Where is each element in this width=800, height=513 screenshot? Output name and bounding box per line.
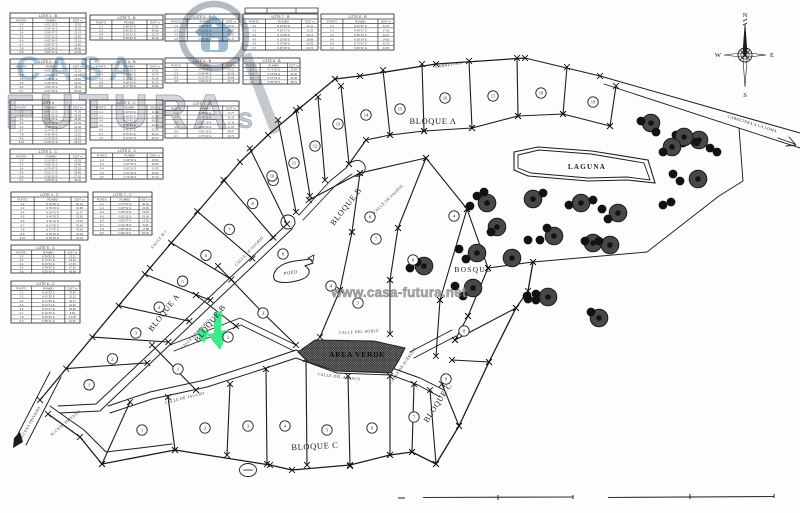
svg-text:15.72: 15.72 [152, 32, 159, 36]
svg-text:PUNTO: PUNTO [17, 197, 28, 201]
svg-text:N 71°50' E: N 71°50' E [42, 299, 55, 303]
svg-text:5-6: 5-6 [330, 42, 334, 46]
svg-text:N 30°17' E: N 30°17' E [42, 307, 55, 311]
svg-text:42.13: 42.13 [152, 80, 159, 84]
svg-text:N 23°45' E: N 23°45' E [277, 24, 290, 28]
svg-text:LOTE 4 - C: LOTE 4 - C [40, 193, 59, 197]
svg-text:1-2: 1-2 [330, 24, 334, 28]
svg-text:3-4: 3-4 [174, 75, 178, 79]
svg-text:N 73°47' E: N 73°47' E [45, 166, 58, 170]
svg-text:17.92: 17.92 [383, 28, 390, 32]
svg-text:3-4: 3-4 [100, 210, 104, 214]
svg-text:N 29°15' E: N 29°15' E [46, 236, 59, 240]
svg-text:6-7: 6-7 [330, 46, 334, 50]
svg-text:RUMBO: RUMBO [43, 286, 55, 290]
svg-text:N 84°43' E: N 84°43' E [199, 79, 212, 83]
svg-text:6-7: 6-7 [252, 46, 256, 50]
svg-text:11.41: 11.41 [307, 24, 314, 28]
svg-text:PUNTO: PUNTO [249, 19, 260, 23]
svg-text:LOTE 5 - B: LOTE 5 - B [193, 15, 212, 19]
svg-text:N 50°18' E: N 50°18' E [42, 269, 55, 273]
svg-text:4-5: 4-5 [100, 171, 104, 175]
svg-text:LAGUNA: LAGUNA [568, 163, 606, 171]
svg-text:10: 10 [270, 174, 275, 179]
svg-text:LOTE 7 - C: LOTE 7 - C [113, 193, 132, 197]
svg-text:13.65: 13.65 [74, 34, 81, 38]
svg-text:30.56: 30.56 [152, 162, 159, 166]
svg-text:N 71°51' E: N 71°51' E [119, 202, 132, 206]
svg-text:www.casa-futura.net: www.casa-futura.net [330, 285, 467, 300]
svg-text:BLOQUE A: BLOQUE A [409, 116, 456, 126]
svg-text:47.10: 47.10 [152, 175, 159, 179]
svg-text:N 85°39' E: N 85°39' E [119, 227, 132, 231]
svg-text:N 21°27' E: N 21°27' E [45, 170, 58, 174]
svg-text:1-2: 1-2 [100, 158, 104, 162]
svg-text:33.23: 33.23 [69, 295, 76, 299]
svg-text:2-3: 2-3 [19, 27, 23, 31]
svg-text:5-6: 5-6 [19, 38, 23, 42]
svg-text:33.53: 33.53 [383, 46, 390, 50]
svg-text:DIST m: DIST m [68, 250, 78, 254]
svg-text:LOTE 8 - B: LOTE 8 - B [349, 15, 368, 19]
svg-text:DIST m: DIST m [226, 19, 236, 23]
svg-text:4-5: 4-5 [174, 37, 178, 41]
svg-text:N 60°38' E: N 60°38' E [267, 80, 280, 84]
svg-text:N 27°37' E: N 27°37' E [46, 228, 59, 232]
svg-text:13.30: 13.30 [142, 219, 149, 223]
svg-text:N 24°41' E: N 24°41' E [46, 210, 59, 214]
svg-text:8.82: 8.82 [70, 311, 76, 315]
svg-text:3-4: 3-4 [252, 33, 256, 37]
svg-text:34.25: 34.25 [290, 76, 297, 80]
svg-text:33.93: 33.93 [74, 23, 81, 27]
svg-text:8-9: 8-9 [21, 232, 25, 236]
svg-text:3-4: 3-4 [19, 30, 23, 34]
svg-text:N 46°18' E: N 46°18' E [46, 215, 59, 219]
svg-text:N 59°52' E: N 59°52' E [46, 202, 59, 206]
svg-text:N 67°56' E: N 67°56' E [124, 162, 137, 166]
svg-text:5-6: 5-6 [21, 219, 25, 223]
svg-text:4-5: 4-5 [19, 303, 23, 307]
svg-text:N 29°41' E: N 29°41' E [45, 140, 58, 144]
svg-text:4-5: 4-5 [19, 170, 23, 174]
svg-text:6-7: 6-7 [100, 223, 104, 227]
svg-text:1-2: 1-2 [174, 24, 178, 28]
svg-text:PUNTO: PUNTO [97, 197, 108, 201]
svg-text:N 43°44' E: N 43°44' E [199, 71, 212, 75]
svg-text:N 88°11' E: N 88°11' E [42, 319, 55, 323]
svg-text:2-3: 2-3 [100, 206, 104, 210]
svg-text:N 65°42' E: N 65°42' E [354, 46, 367, 50]
svg-text:5-6: 5-6 [252, 42, 256, 46]
svg-text:N 39°52' E: N 39°52' E [42, 254, 55, 258]
svg-text:40.78: 40.78 [306, 46, 313, 50]
svg-text:30.68: 30.68 [228, 75, 235, 79]
svg-text:N 63°14' E: N 63°14' E [45, 38, 58, 42]
svg-text:14.60: 14.60 [383, 37, 390, 41]
svg-text:2-3: 2-3 [99, 28, 103, 32]
svg-text:4-5: 4-5 [19, 34, 23, 38]
svg-text:30.29: 30.29 [142, 231, 149, 235]
svg-text:4-5: 4-5 [100, 214, 104, 218]
svg-text:RUMBO: RUMBO [268, 63, 280, 67]
svg-text:36.46: 36.46 [74, 178, 81, 182]
svg-text:38.99: 38.99 [74, 170, 81, 174]
svg-text:N 37°12' E: N 37°12' E [45, 34, 58, 38]
svg-text:19: 19 [591, 100, 596, 105]
svg-text:RUMBO: RUMBO [355, 19, 367, 23]
svg-text:12.37: 12.37 [383, 24, 390, 28]
svg-text:3-4: 3-4 [174, 33, 178, 37]
svg-text:N 50°31' E: N 50°31' E [45, 162, 58, 166]
svg-text:29.36: 29.36 [152, 171, 159, 175]
svg-text:N 71°42' E: N 71°42' E [267, 68, 280, 72]
svg-text:13.31: 13.31 [76, 219, 83, 223]
svg-text:PUNTO: PUNTO [171, 63, 182, 67]
svg-text:17.91: 17.91 [152, 25, 159, 29]
svg-text:DIST m: DIST m [150, 20, 160, 24]
svg-text:1-2: 1-2 [100, 202, 104, 206]
svg-text:N 56°47' E: N 56°47' E [45, 30, 58, 34]
svg-text:3-4: 3-4 [330, 33, 334, 37]
svg-text:4-5: 4-5 [99, 36, 103, 40]
svg-text:40.35: 40.35 [306, 42, 313, 46]
svg-text:10.22: 10.22 [306, 28, 313, 32]
svg-text:2-3: 2-3 [19, 258, 23, 262]
svg-text:CASA: CASA [16, 50, 140, 88]
svg-text:1-2: 1-2 [174, 68, 178, 72]
svg-text:11: 11 [292, 161, 297, 166]
svg-text:18.76: 18.76 [152, 72, 159, 76]
svg-text:43.35: 43.35 [290, 72, 297, 76]
svg-text:33.17: 33.17 [69, 299, 76, 303]
svg-text:DIST m: DIST m [150, 153, 160, 157]
svg-text:43.60: 43.60 [69, 291, 76, 295]
svg-text:N 20°24' E: N 20°24' E [124, 167, 137, 171]
svg-text:7-8: 7-8 [21, 228, 25, 232]
svg-text:43.45: 43.45 [76, 223, 83, 227]
svg-text:24.27: 24.27 [383, 33, 390, 37]
svg-text:5-6: 5-6 [100, 219, 104, 223]
svg-text:9-10: 9-10 [19, 140, 25, 144]
svg-text:4-5: 4-5 [174, 79, 178, 83]
svg-text:16.12: 16.12 [228, 24, 235, 28]
svg-text:8-9: 8-9 [100, 231, 104, 235]
svg-text:DIST m: DIST m [68, 286, 78, 290]
svg-text:43.83: 43.83 [74, 159, 81, 163]
svg-text:AREA VERDE: AREA VERDE [329, 350, 385, 359]
svg-text:12.36: 12.36 [69, 319, 76, 323]
svg-text:17.63: 17.63 [69, 262, 76, 266]
svg-text:N 16°16' E: N 16°16' E [42, 311, 55, 315]
svg-text:46.56: 46.56 [152, 28, 159, 32]
svg-text:2-3: 2-3 [174, 71, 178, 75]
svg-text:40.89: 40.89 [69, 269, 76, 273]
svg-text:S: S [238, 108, 253, 133]
svg-text:1-2: 1-2 [19, 23, 23, 27]
svg-text:DIST m: DIST m [381, 19, 391, 23]
svg-text:2-3: 2-3 [19, 295, 23, 299]
svg-text:5-6: 5-6 [19, 269, 23, 273]
svg-text:11.74: 11.74 [74, 30, 81, 34]
svg-text:N 67°18' E: N 67°18' E [267, 76, 280, 80]
svg-text:8-9: 8-9 [19, 319, 23, 323]
svg-text:N 74°48' E: N 74°48' E [277, 42, 290, 46]
svg-text:N 70°22' E: N 70°22' E [124, 171, 137, 175]
svg-text:2-3: 2-3 [19, 162, 23, 166]
svg-text:1-2: 1-2 [21, 202, 25, 206]
svg-text:14.39: 14.39 [152, 167, 159, 171]
svg-text:4-5: 4-5 [19, 266, 23, 270]
svg-text:6-7: 6-7 [19, 42, 23, 46]
svg-text:PUNTO: PUNTO [171, 19, 182, 23]
svg-text:2-3: 2-3 [330, 28, 334, 32]
svg-text:N 78°33' E: N 78°33' E [42, 266, 55, 270]
svg-text:5-6: 5-6 [19, 174, 23, 178]
svg-text:5-6: 5-6 [100, 175, 104, 179]
svg-text:PUNTO: PUNTO [16, 18, 27, 22]
svg-text:17: 17 [491, 94, 496, 99]
svg-text:N 76°26' E: N 76°26' E [267, 72, 280, 76]
svg-text:N 18°38' E: N 18°38' E [277, 37, 290, 41]
svg-text:6-7: 6-7 [21, 223, 25, 227]
svg-text:37.18: 37.18 [74, 166, 81, 170]
svg-text:LOTE 3 - B: LOTE 3 - B [118, 16, 137, 20]
svg-text:34.26: 34.26 [228, 71, 235, 75]
svg-text:N 69°40' E: N 69°40' E [123, 36, 136, 40]
svg-text:DIST m: DIST m [75, 197, 85, 201]
svg-text:W: W [715, 52, 722, 59]
svg-text:N 61°57' E: N 61°57' E [119, 219, 132, 223]
svg-text:38.49: 38.49 [152, 36, 159, 40]
svg-text:N 40°37' E: N 40°37' E [354, 24, 367, 28]
svg-text:1-2: 1-2 [99, 25, 103, 29]
svg-text:2-3: 2-3 [252, 28, 256, 32]
svg-text:34.74: 34.74 [228, 79, 235, 83]
svg-text:7-8: 7-8 [19, 315, 23, 319]
svg-text:3-4: 3-4 [19, 262, 23, 266]
svg-text:N 48°17' E: N 48°17' E [354, 28, 367, 32]
svg-text:4-5: 4-5 [21, 215, 25, 219]
svg-text:6-7: 6-7 [19, 178, 23, 182]
svg-text:N 34°14' E: N 34°14' E [42, 303, 55, 307]
svg-text:N 72°47' E: N 72°47' E [42, 258, 55, 262]
svg-text:DIST m: DIST m [150, 64, 160, 68]
svg-text:N 29°44' E: N 29°44' E [42, 315, 55, 319]
svg-text:5-6: 5-6 [19, 307, 23, 311]
svg-text:15: 15 [398, 107, 403, 112]
svg-text:PUNTO: PUNTO [327, 19, 338, 23]
svg-text:2-3: 2-3 [100, 162, 104, 166]
svg-text:30.92: 30.92 [142, 202, 149, 206]
svg-text:RUMBO: RUMBO [43, 250, 55, 254]
svg-text:LOTE 6 - C: LOTE 6 - C [36, 282, 55, 286]
svg-text:6-7: 6-7 [19, 311, 23, 315]
svg-text:13: 13 [336, 122, 341, 127]
svg-text:3-4: 3-4 [19, 299, 23, 303]
svg-text:29.86: 29.86 [69, 307, 76, 311]
svg-text:23.99: 23.99 [290, 68, 297, 72]
svg-text:21.47: 21.47 [228, 37, 235, 41]
svg-text:3-4: 3-4 [100, 167, 104, 171]
svg-text:PUNTO: PUNTO [16, 286, 27, 290]
svg-text:45.51: 45.51 [228, 68, 235, 72]
svg-text:16: 16 [443, 96, 448, 101]
svg-text:9.29: 9.29 [143, 223, 149, 227]
svg-text:2-3: 2-3 [21, 206, 25, 210]
svg-text:18.88: 18.88 [76, 206, 83, 210]
svg-text:9-10: 9-10 [20, 236, 26, 240]
svg-text:RUMBO: RUMBO [46, 18, 58, 22]
svg-text:3-4: 3-4 [99, 32, 103, 36]
svg-text:N 74°38' E: N 74°38' E [277, 33, 290, 37]
svg-text:28.19: 28.19 [290, 80, 297, 84]
svg-text:FUTURA: FUTURA [5, 86, 232, 139]
svg-text:N 80°37' E: N 80°37' E [45, 42, 58, 46]
svg-text:2-3: 2-3 [174, 28, 178, 32]
svg-text:47.82: 47.82 [69, 266, 76, 270]
svg-text:11.82: 11.82 [74, 42, 81, 46]
svg-text:19.65: 19.65 [142, 210, 149, 214]
svg-text:DIST m: DIST m [289, 63, 299, 67]
svg-text:DIST m: DIST m [73, 154, 83, 158]
svg-text:N 69°32' E: N 69°32' E [46, 206, 59, 210]
svg-text:N 46°10' E: N 46°10' E [42, 262, 55, 266]
svg-text:4-5: 4-5 [330, 37, 334, 41]
svg-text:N 72°20' E: N 72°20' E [354, 42, 367, 46]
svg-text:19.29: 19.29 [76, 236, 83, 240]
svg-text:N 86°40' E: N 86°40' E [119, 231, 132, 235]
svg-text:BOSQUE: BOSQUE [454, 265, 491, 274]
svg-text:PUNTO: PUNTO [16, 154, 27, 158]
svg-text:28.88: 28.88 [306, 37, 313, 41]
svg-text:3-4: 3-4 [21, 210, 25, 214]
svg-text:14.56: 14.56 [69, 315, 76, 319]
svg-text:30.12: 30.12 [76, 202, 83, 206]
svg-text:RUMBO: RUMBO [125, 153, 137, 157]
svg-text:N 17°57' E: N 17°57' E [199, 75, 212, 79]
svg-text:46.54: 46.54 [152, 158, 159, 162]
svg-text:RUMBO: RUMBO [278, 19, 290, 23]
svg-text:15.59: 15.59 [142, 206, 149, 210]
svg-text:N 71°49' E: N 71°49' E [124, 175, 137, 179]
svg-text:18: 18 [539, 91, 544, 96]
svg-text:17.88: 17.88 [142, 227, 149, 231]
svg-text:N 60°41' E: N 60°41' E [46, 219, 59, 223]
svg-text:43.13: 43.13 [306, 33, 313, 37]
svg-text:N 70°17' E: N 70°17' E [123, 32, 136, 36]
svg-text:1-2: 1-2 [19, 291, 23, 295]
svg-text:14.53: 14.53 [152, 69, 159, 73]
svg-text:27.92: 27.92 [74, 174, 81, 178]
svg-text:PUNTO: PUNTO [97, 153, 108, 157]
svg-text:DIST m: DIST m [141, 197, 151, 201]
svg-text:RUMBO: RUMBO [46, 154, 58, 158]
svg-text:3-4: 3-4 [19, 166, 23, 170]
svg-text:N 52°15' E: N 52°15' E [119, 214, 132, 218]
svg-text:N: N [743, 12, 748, 19]
svg-text:N 35°40' E: N 35°40' E [119, 210, 132, 214]
svg-text:N 83°53' E: N 83°53' E [45, 178, 58, 182]
svg-text:N 56°19' E: N 56°19' E [354, 33, 367, 37]
svg-text:11.37: 11.37 [76, 210, 83, 214]
svg-text:DIST m: DIST m [305, 19, 315, 23]
svg-text:N 45°38' E: N 45°38' E [277, 46, 290, 50]
svg-text:PUNTO: PUNTO [96, 20, 107, 24]
svg-text:RUMBO: RUMBO [47, 197, 59, 201]
svg-text:LOTE 5 - C: LOTE 5 - C [36, 246, 55, 250]
svg-text:LOTE 5 - C: LOTE 5 - C [118, 149, 137, 153]
svg-text:N 16°14' E: N 16°14' E [45, 27, 58, 31]
svg-text:1-2: 1-2 [19, 254, 23, 258]
svg-text:34.15: 34.15 [74, 140, 81, 144]
svg-text:12: 12 [313, 144, 318, 149]
svg-text:N 69°24' E: N 69°24' E [354, 37, 367, 41]
svg-text:22.11: 22.11 [69, 254, 76, 258]
svg-text:33.69: 33.69 [142, 214, 149, 218]
svg-text:N 51°19' E: N 51°19' E [45, 23, 58, 27]
svg-text:23.21: 23.21 [74, 38, 81, 42]
svg-text:LOTE 8 - B: LOTE 8 - B [263, 59, 282, 63]
svg-text:N 31°18' E: N 31°18' E [119, 223, 132, 227]
svg-text:N 18°13' E: N 18°13' E [45, 174, 58, 178]
svg-text:N 42°32' E: N 42°32' E [123, 28, 136, 32]
svg-text:PUNTO: PUNTO [16, 250, 27, 254]
svg-text:N 19°58' E: N 19°58' E [45, 159, 58, 163]
svg-text:LOTE 1 - B: LOTE 1 - B [39, 14, 58, 18]
svg-text:1-2: 1-2 [19, 159, 23, 163]
svg-text:LOTE 3 - C: LOTE 3 - C [39, 150, 58, 154]
svg-text:14: 14 [364, 113, 369, 118]
svg-text:N 20°52' E: N 20°52' E [119, 206, 132, 210]
svg-text:41.56: 41.56 [152, 76, 159, 80]
svg-text:19.43: 19.43 [69, 258, 76, 262]
svg-text:7-8: 7-8 [100, 227, 104, 231]
svg-text:RUMBO: RUMBO [124, 20, 136, 24]
svg-text:N 63°32' E: N 63°32' E [46, 232, 59, 236]
svg-text:N 67°35' E: N 67°35' E [46, 223, 59, 227]
svg-text:4-5: 4-5 [252, 37, 256, 41]
svg-text:N 60°35' E: N 60°35' E [42, 295, 55, 299]
svg-text:30.86: 30.86 [74, 162, 81, 166]
svg-text:N 16°39' E: N 16°39' E [42, 291, 55, 295]
svg-text:DIST m: DIST m [73, 18, 83, 22]
svg-text:23.60: 23.60 [76, 215, 83, 219]
svg-text:S: S [743, 92, 747, 99]
svg-text:32.39: 32.39 [76, 232, 83, 236]
svg-text:43.45: 43.45 [76, 228, 83, 232]
svg-text:42.22: 42.22 [74, 27, 81, 31]
svg-text:RUMBO: RUMBO [120, 197, 132, 201]
svg-text:N 88°34' E: N 88°34' E [123, 25, 136, 29]
svg-text:N 34°54' E: N 34°54' E [124, 158, 137, 162]
svg-text:N 34°27' E: N 34°27' E [277, 28, 290, 32]
svg-text:LOTE 7 - B: LOTE 7 - B [272, 15, 291, 19]
svg-text:22.30: 22.30 [383, 42, 390, 46]
svg-text:E: E [770, 52, 774, 59]
svg-text:1-2: 1-2 [252, 24, 256, 28]
svg-text:21.66: 21.66 [69, 303, 76, 307]
